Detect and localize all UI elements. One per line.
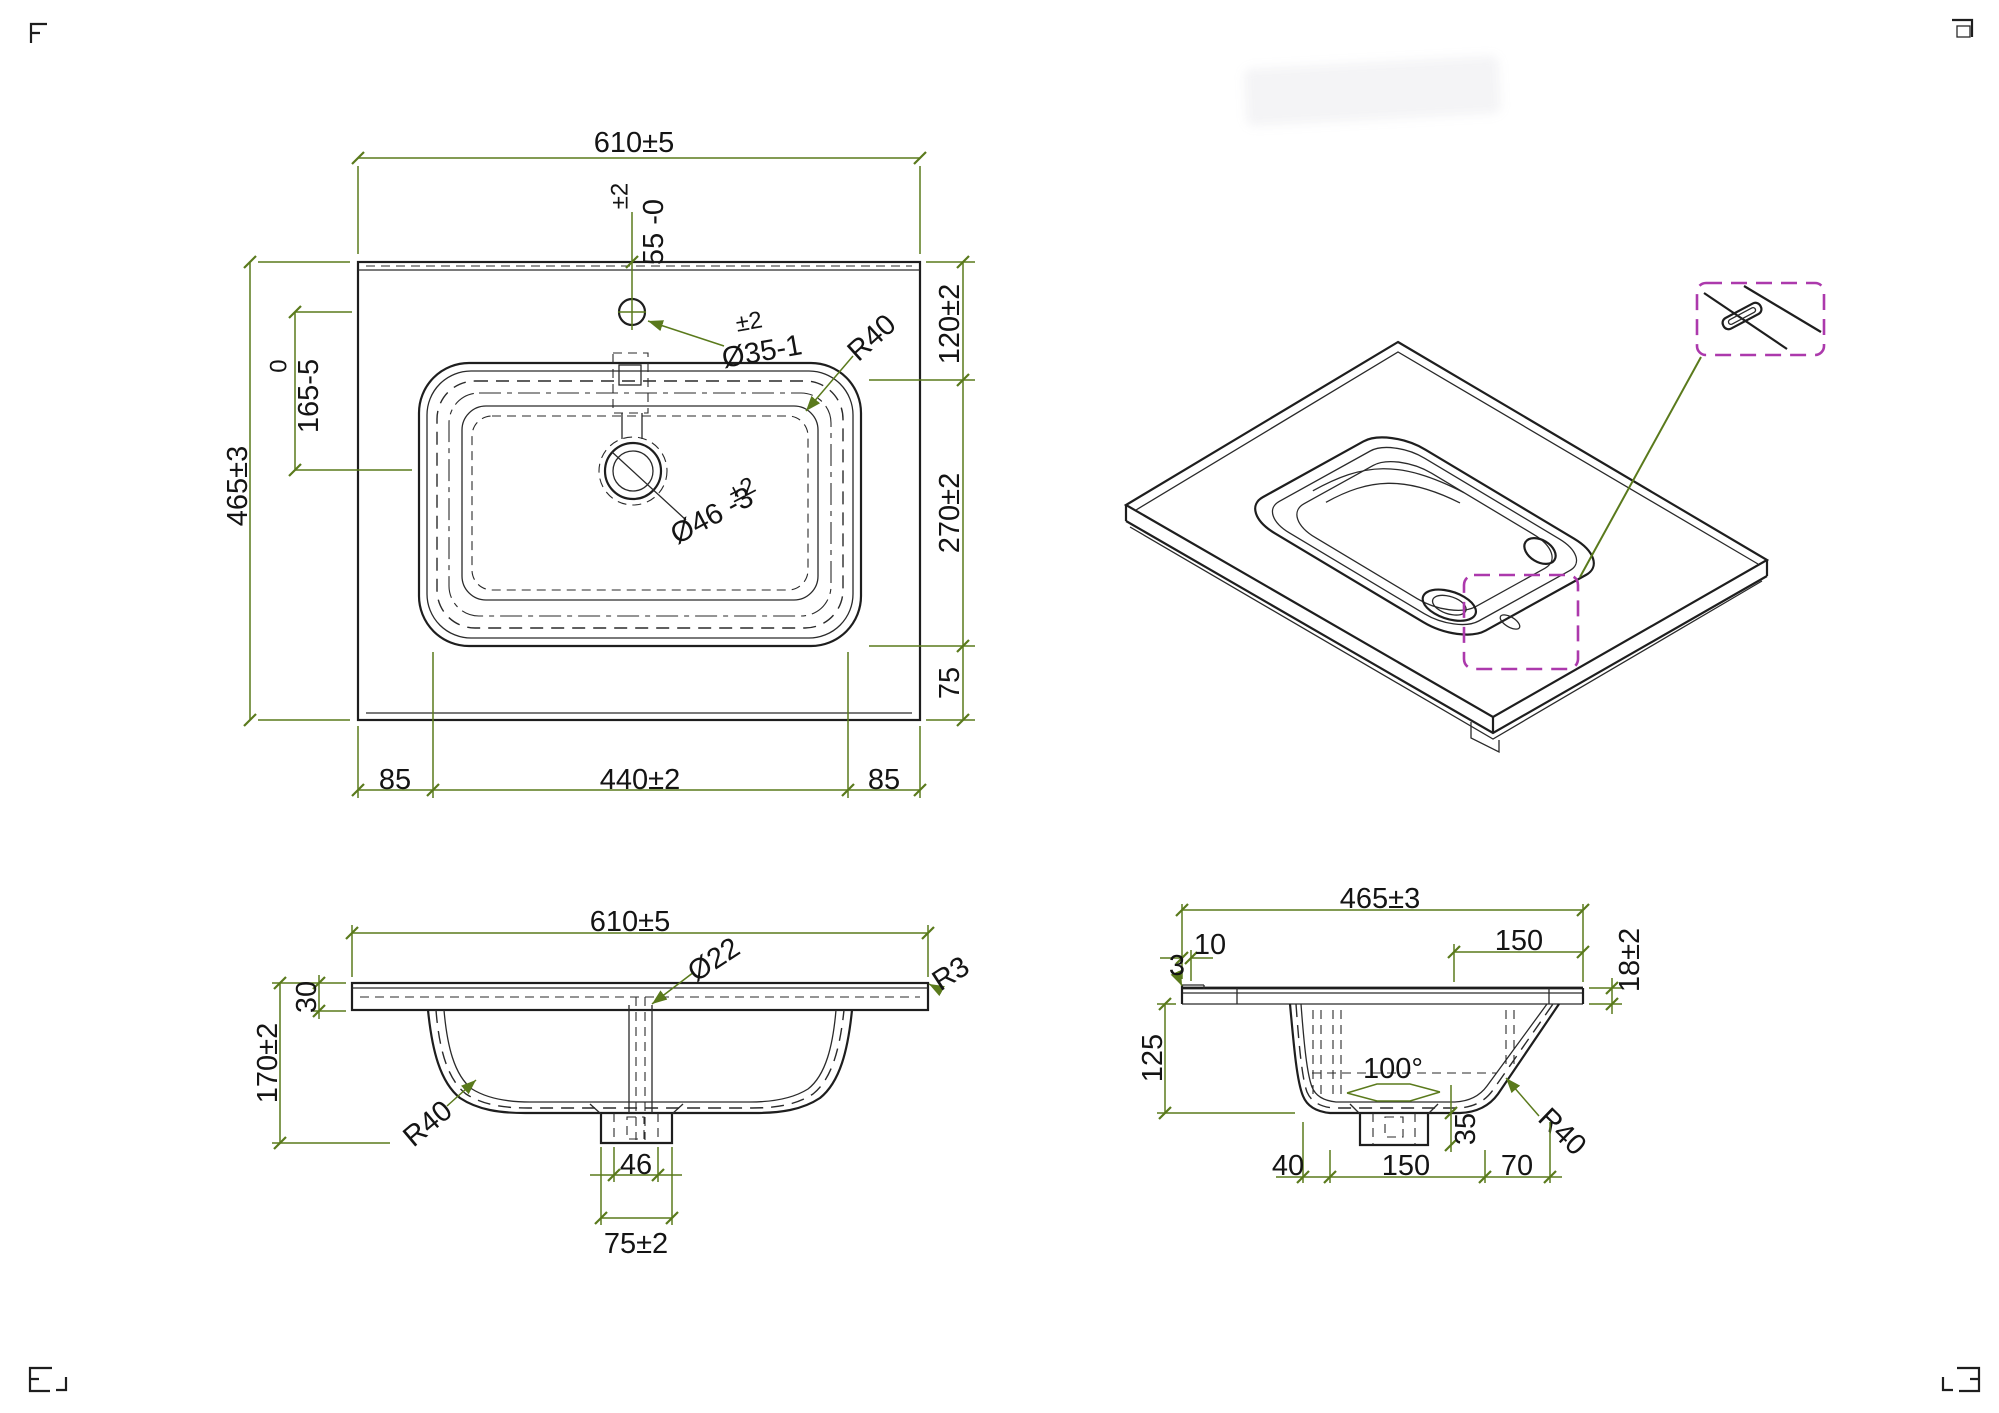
- counter-slab-side: [1182, 985, 1583, 1004]
- dim-faucet-offset: ±2 55 -0: [607, 183, 671, 330]
- overflow-channel-front: [629, 997, 652, 1140]
- dim-label: 3: [1169, 950, 1185, 982]
- dim-label: 465±3: [1340, 883, 1420, 915]
- corner-mark-bottom-left: [30, 1368, 66, 1391]
- dim-label: R3: [927, 950, 976, 997]
- dim-label: 75: [934, 667, 966, 699]
- dim-label: 75±2: [604, 1228, 668, 1260]
- dim-tol-label: ±2: [734, 306, 765, 337]
- dim-slab-thickness: 30: [272, 975, 346, 1019]
- counter-slab-front: [352, 983, 928, 1010]
- dim-edge-radius: R3: [927, 950, 976, 997]
- detail-view: [1697, 283, 1824, 355]
- top-view: 610±5 ±2 55 -0 ±2 Ø35-1 R40 0 165-5: [222, 127, 975, 798]
- detail-leader-line: [1580, 357, 1701, 577]
- counter-slab-iso: [1126, 342, 1767, 752]
- dim-lip-height: 3: [1169, 950, 1185, 986]
- isometric-view: [1126, 283, 1824, 752]
- dim-basin-offset: 0 165-5: [266, 306, 413, 476]
- corner-mark-top-left: [31, 24, 47, 43]
- dim-side-bottom-chain: 40 150 70: [1272, 1122, 1562, 1183]
- dim-top-corner-radius: R40: [806, 308, 902, 411]
- dim-top-depth: 465±3: [222, 256, 350, 726]
- dim-label: 85: [379, 764, 411, 796]
- corner-mark-bottom-right: [1943, 1368, 1979, 1391]
- dim-label: 10: [1194, 929, 1226, 961]
- front-section-view: 610±5 Ø22 R3 30 170±2 R40: [252, 906, 975, 1260]
- dim-drain-width: 46: [590, 1147, 682, 1182]
- dim-label: Ø22: [682, 932, 745, 989]
- dim-label: 465±3: [222, 446, 254, 526]
- dim-front-width: 610±5: [346, 906, 934, 977]
- dim-label: 30: [291, 981, 323, 1013]
- overflow-slot-detail: [1721, 301, 1764, 331]
- dim-label: 125: [1137, 1034, 1169, 1082]
- dim-label: 18±2: [1614, 928, 1646, 992]
- dim-label: 440±2: [600, 764, 680, 796]
- dim-label: 150: [1495, 925, 1543, 957]
- side-section-view: 465±3 10 150 18±2 3: [1137, 883, 1646, 1183]
- dim-wall-angle: 100°: [1347, 1053, 1440, 1101]
- dim-label: 35: [1450, 1113, 1482, 1145]
- dim-label: 46: [620, 1149, 652, 1181]
- dim-label: 40: [1272, 1150, 1304, 1182]
- dim-label: R40: [1532, 1102, 1593, 1162]
- drain-hole: [599, 437, 686, 520]
- dim-label: 170±2: [252, 1023, 284, 1103]
- dim-back-span: 150: [1448, 925, 1589, 982]
- counter-outline: [358, 262, 920, 720]
- dim-label: 150: [1382, 1150, 1430, 1182]
- dim-rim-height: 18±2: [1589, 928, 1646, 1014]
- dim-label: 165-5: [293, 359, 325, 433]
- drain-hole-iso: [1412, 584, 1486, 627]
- dim-label: 100°: [1363, 1053, 1423, 1085]
- dim-faucet-dia: ±2 Ø35-1: [648, 306, 804, 374]
- drain-boss-side: [1350, 1104, 1438, 1145]
- dim-boss-height: 35: [1445, 1085, 1482, 1152]
- faucet-hole-iso: [1520, 533, 1560, 569]
- dim-label: Ø46 -3: [665, 481, 758, 551]
- dim-label: 120±2: [934, 284, 966, 364]
- dim-label: Ø35-1: [720, 329, 805, 375]
- corner-mark-top-right: [1952, 20, 1972, 37]
- overflow-channel: [613, 353, 648, 439]
- dim-label: 610±5: [590, 906, 670, 938]
- bowl-section-front: [428, 1010, 852, 1113]
- dim-label: 270±2: [934, 473, 966, 553]
- dim-label: 70: [1501, 1150, 1533, 1182]
- dim-tol-label: ±2: [607, 183, 634, 210]
- dim-bottom-chain: 85 440±2 85: [352, 652, 926, 798]
- dim-front-bowl-radius: R40: [397, 1080, 476, 1153]
- cad-drawing: 610±5 ±2 55 -0 ±2 Ø35-1 R40 0 165-5: [0, 0, 1999, 1413]
- overflow-hole-iso: [1498, 612, 1522, 632]
- drawing-sheet: 610±5 ±2 55 -0 ±2 Ø35-1 R40 0 165-5: [0, 0, 1999, 1413]
- dim-tol-label: 0: [266, 359, 293, 372]
- basin-iso: [1238, 428, 1611, 645]
- dim-overflow-dia: Ø22: [652, 932, 746, 1004]
- dim-bowl-depth: 125: [1137, 998, 1295, 1119]
- dim-label: 85: [868, 764, 900, 796]
- dim-label: 610±5: [594, 127, 674, 159]
- dim-label: 55 -0: [638, 199, 670, 265]
- dim-drain-dia: ±2 Ø46 -3: [665, 472, 760, 551]
